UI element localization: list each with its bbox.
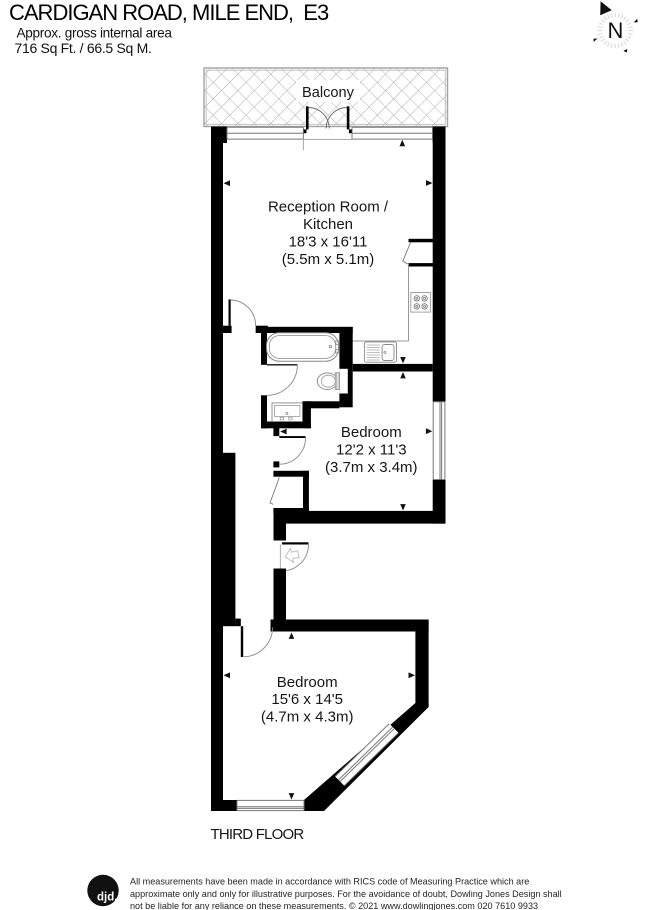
svg-text:(4.7m x 4.3m): (4.7m x 4.3m)	[261, 709, 354, 726]
svg-text:CARDIGAN ROAD, MILE END, E3: CARDIGAN ROAD, MILE END, E3	[9, 0, 329, 25]
svg-text:(3.7m x 3.4m): (3.7m x 3.4m)	[325, 459, 418, 476]
svg-text:djd.: djd.	[97, 892, 117, 904]
svg-text:approximate only and only for: approximate only and only for illustrati…	[130, 889, 562, 899]
svg-text:(5.5m x 5.1m): (5.5m x 5.1m)	[282, 251, 375, 268]
svg-text:18'3 x 16'11: 18'3 x 16'11	[289, 234, 368, 251]
svg-text:Kitchen: Kitchen	[303, 216, 353, 233]
svg-text:Bedroom: Bedroom	[277, 674, 338, 691]
svg-text:716 Sq Ft. / 66.5 Sq M.: 716 Sq Ft. / 66.5 Sq M.	[15, 40, 152, 56]
svg-text:12'2 x 11'3: 12'2 x 11'3	[336, 442, 407, 459]
svg-text:Reception Room /: Reception Room /	[268, 199, 389, 216]
svg-text:N: N	[607, 18, 623, 43]
svg-text:Balcony: Balcony	[302, 85, 355, 101]
svg-text:All measurements have been mad: All measurements have been made in accor…	[130, 877, 529, 887]
svg-text:Bedroom: Bedroom	[341, 424, 402, 441]
svg-text:THIRD FLOOR: THIRD FLOOR	[211, 826, 305, 843]
svg-text:15'6 x 14'5: 15'6 x 14'5	[271, 691, 343, 708]
svg-text:not be liable for any reliance: not be liable for any reliance on these …	[130, 901, 538, 910]
svg-text:Approx. gross internal area: Approx. gross internal area	[17, 25, 173, 40]
